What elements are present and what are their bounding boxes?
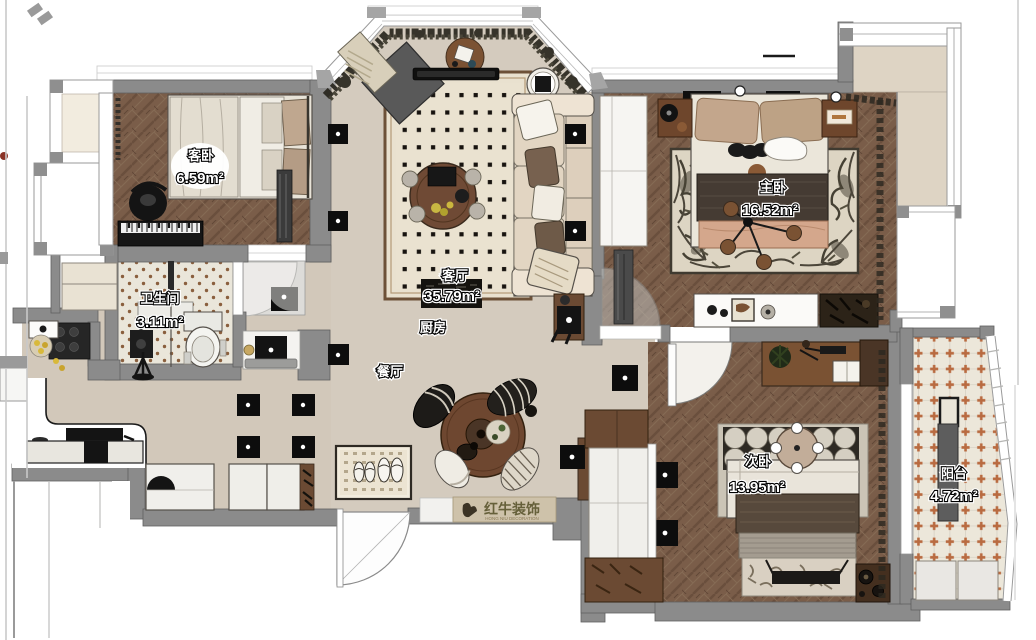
svg-text:16.52m²: 16.52m²: [742, 202, 798, 219]
svg-text:13.95m²: 13.95m²: [729, 479, 785, 496]
svg-text:HONG NIU DECORATION: HONG NIU DECORATION: [485, 516, 538, 521]
svg-text:客卧: 客卧: [188, 148, 214, 163]
svg-text:厨房: 厨房: [420, 320, 446, 335]
svg-text:主卧: 主卧: [760, 180, 786, 195]
svg-text:35.79m²: 35.79m²: [424, 288, 480, 305]
svg-text:次卧: 次卧: [745, 454, 771, 469]
svg-text:红牛装饰: 红牛装饰: [484, 501, 540, 517]
svg-text:餐厅: 餐厅: [376, 364, 403, 379]
svg-text:6.59m²: 6.59m²: [176, 170, 224, 187]
svg-text:4.72m²: 4.72m²: [930, 488, 978, 505]
svg-text:客厅: 客厅: [442, 268, 468, 283]
svg-text:卫生间: 卫生间: [140, 291, 179, 306]
svg-text:阳台: 阳台: [941, 466, 967, 481]
svg-text:3.11m²: 3.11m²: [137, 314, 184, 331]
